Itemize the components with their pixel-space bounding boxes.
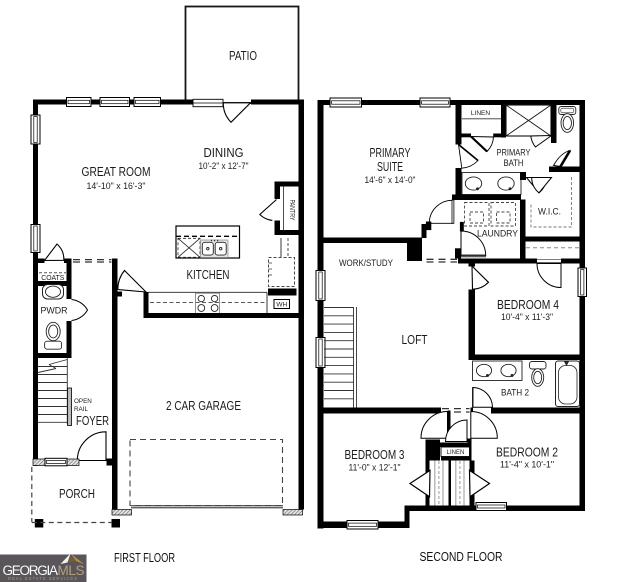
svg-text:DINING: DINING [204,146,244,160]
svg-text:SECOND FLOOR: SECOND FLOOR [420,549,503,564]
svg-text:W.I.C.: W.I.C. [538,207,561,218]
svg-text:KITCHEN: KITCHEN [187,268,230,282]
svg-text:PRIMARY: PRIMARY [370,146,411,160]
svg-text:PWDR: PWDR [41,306,68,317]
svg-text:BEDROOM 3: BEDROOM 3 [345,448,405,462]
svg-text:10'-2" x 12'-7": 10'-2" x 12'-7" [199,161,249,171]
svg-text:LOFT: LOFT [402,333,428,347]
svg-text:WH: WH [276,302,287,309]
svg-text:BEDROOM 2: BEDROOM 2 [496,446,558,460]
svg-text:LINEN: LINEN [471,110,490,117]
svg-text:LAUNDRY: LAUNDRY [477,229,519,240]
svg-text:REAL ESTATE SERVICES: REAL ESTATE SERVICES [8,576,78,581]
svg-text:11'-0" x 12'-1": 11'-0" x 12'-1" [349,463,401,473]
svg-text:FOYER: FOYER [76,414,109,428]
svg-text:OPEN: OPEN [74,398,92,405]
svg-text:LINEN: LINEN [447,450,465,456]
svg-text:SUITE: SUITE [377,160,403,174]
svg-text:PORCH: PORCH [59,487,95,501]
svg-text:BEDROOM 4: BEDROOM 4 [497,298,559,312]
svg-text:BATH 2: BATH 2 [501,388,529,399]
svg-text:PATIO: PATIO [229,49,257,63]
svg-text:10'-4" x 11'-3": 10'-4" x 11'-3" [501,312,553,322]
svg-text:11'-4" x 10'-1": 11'-4" x 10'-1" [500,460,554,470]
svg-text:BATH: BATH [504,158,524,169]
svg-text:14'-6" x 14'-0": 14'-6" x 14'-0" [365,175,416,185]
svg-text:COATS: COATS [41,275,64,282]
svg-text:RAIL: RAIL [74,406,88,413]
svg-text:14'-10" x 16'-3": 14'-10" x 16'-3" [87,181,146,191]
svg-text:PANTRY: PANTRY [288,200,295,221]
svg-text:GREAT ROOM: GREAT ROOM [82,165,151,179]
svg-text:FIRST FLOOR: FIRST FLOOR [114,550,175,565]
svg-text:2 CAR GARAGE: 2 CAR GARAGE [166,399,241,413]
svg-text:WORK/STUDY: WORK/STUDY [339,258,394,269]
svg-text:PRIMARY: PRIMARY [497,148,532,159]
